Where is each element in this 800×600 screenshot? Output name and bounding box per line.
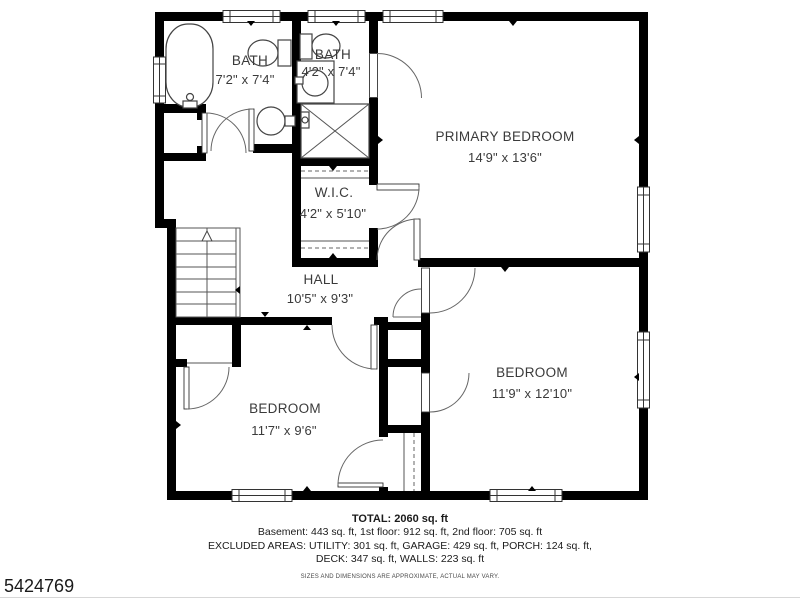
image-bottom-edge xyxy=(0,597,800,598)
door-swing xyxy=(422,268,476,313)
sink xyxy=(257,107,295,135)
door-swing xyxy=(393,289,421,317)
door-swing xyxy=(332,325,377,369)
total-area: TOTAL: 2060 sq. ft xyxy=(0,512,800,526)
room-dims-bedroom2: 11'9" x 12'10" xyxy=(492,386,573,401)
room-label-bedroom1: BEDROOM xyxy=(249,401,321,416)
room-dims-primary-bedroom: 14'9" x 13'6" xyxy=(468,150,542,165)
window xyxy=(154,57,166,103)
bathtub xyxy=(166,24,213,108)
room-dims-wic: 4'2" x 5'10" xyxy=(300,206,367,221)
floor-plan: BATH 7'2" x 7'4" BATH 4'2" x 7'4" PRIMAR… xyxy=(0,0,800,600)
area-summary: TOTAL: 2060 sq. ft Basement: 443 sq. ft,… xyxy=(0,512,800,580)
room-dims-hall: 10'5" x 9'3" xyxy=(287,291,354,306)
stairs-up-arrow xyxy=(202,231,212,241)
room-dims-bath1: 7'2" x 7'4" xyxy=(215,72,274,87)
window xyxy=(638,332,650,408)
disclaimer: SIZES AND DIMENSIONS ARE APPROXIMATE, AC… xyxy=(0,574,800,580)
door-swing xyxy=(202,113,246,153)
excluded-areas-1: EXCLUDED AREAS: UTILITY: 301 sq. ft, GAR… xyxy=(0,540,800,554)
room-label-hall: HALL xyxy=(304,272,339,287)
door-swing xyxy=(422,373,470,412)
room-label-primary-bedroom: PRIMARY BEDROOM xyxy=(435,129,574,144)
window xyxy=(383,11,443,23)
window xyxy=(223,11,280,23)
staircase xyxy=(176,228,240,317)
room-label-bath1: BATH xyxy=(232,53,268,68)
floor-areas: Basement: 443 sq. ft, 1st floor: 912 sq.… xyxy=(0,526,800,540)
door-swing xyxy=(377,184,419,229)
door-swing xyxy=(184,367,229,409)
dimension-markers xyxy=(176,21,639,491)
door-swing xyxy=(211,109,254,151)
door-swing xyxy=(370,54,422,99)
room-labels: BATH 7'2" x 7'4" BATH 4'2" x 7'4" PRIMAR… xyxy=(215,47,574,438)
window xyxy=(490,490,562,502)
room-label-bedroom2: BEDROOM xyxy=(496,365,568,380)
window xyxy=(232,490,292,502)
door-swing xyxy=(338,440,383,487)
shower xyxy=(301,104,369,158)
listing-number: 5424769 xyxy=(4,576,74,597)
room-label-bath2: BATH xyxy=(315,47,351,62)
room-dims-bath2: 4'2" x 7'4" xyxy=(301,64,360,79)
excluded-areas-2: DECK: 347 sq. ft, WALLS: 223 sq. ft xyxy=(0,553,800,567)
room-dims-bedroom1: 11'7" x 9'6" xyxy=(251,423,317,438)
window xyxy=(638,187,650,252)
window xyxy=(308,11,365,23)
door-swing xyxy=(377,219,420,260)
room-label-wic: W.I.C. xyxy=(315,185,354,200)
